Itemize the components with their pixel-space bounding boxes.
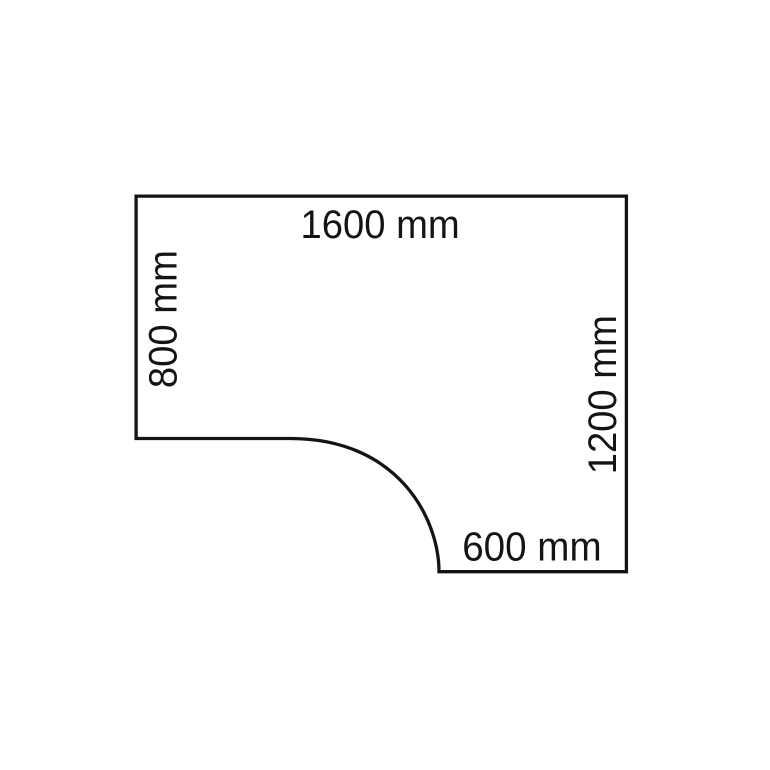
svg-text:600 mm: 600 mm: [462, 525, 601, 570]
svg-text:1200 mm: 1200 mm: [581, 315, 625, 474]
svg-text:800 mm: 800 mm: [142, 250, 186, 388]
svg-text:1600 mm: 1600 mm: [300, 203, 459, 247]
